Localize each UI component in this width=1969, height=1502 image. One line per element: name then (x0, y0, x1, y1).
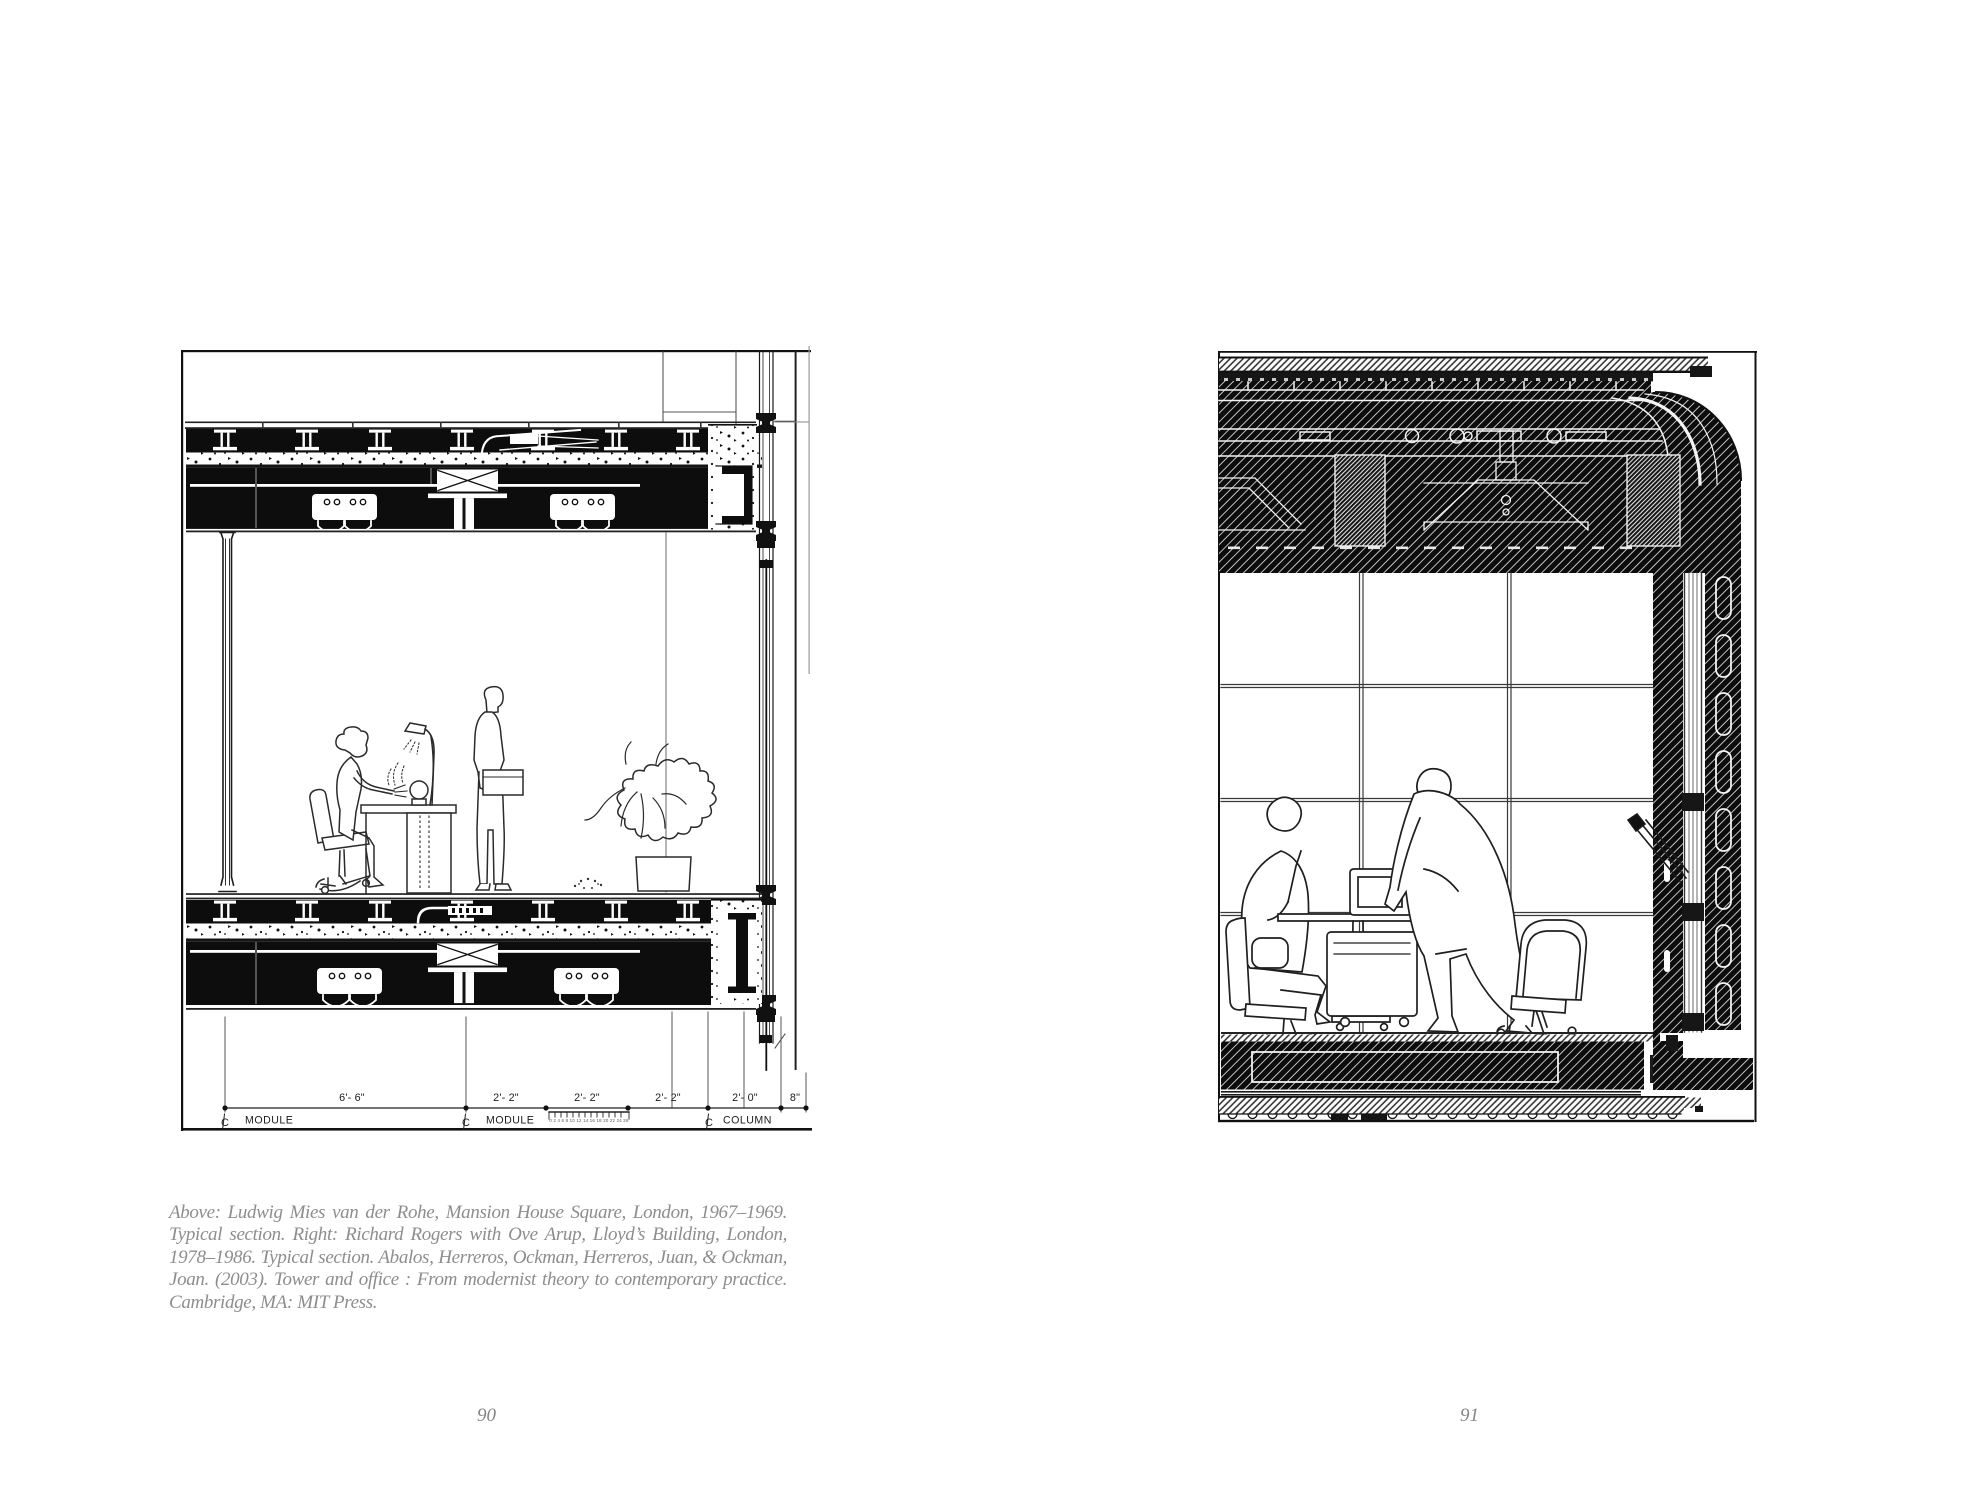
svg-text:2'- 2": 2'- 2" (493, 1092, 519, 1104)
svg-text:C: C (221, 1117, 229, 1129)
svg-text:2'- 2": 2'- 2" (655, 1092, 681, 1104)
svg-text:MODULE: MODULE (245, 1115, 293, 1127)
svg-text:C: C (705, 1117, 713, 1129)
svg-text:6'- 6": 6'- 6" (339, 1092, 365, 1104)
svg-text:8": 8" (790, 1092, 800, 1104)
svg-text:0 2 4 6 8 10 12 14 16 18 20 22: 0 2 4 6 8 10 12 14 16 18 20 22 24 26 (549, 1118, 629, 1123)
svg-text:C: C (462, 1117, 470, 1129)
svg-text:2'- 2": 2'- 2" (574, 1092, 600, 1104)
svg-text:MODULE: MODULE (486, 1115, 534, 1127)
svg-text:COLUMN: COLUMN (723, 1115, 772, 1127)
svg-text:2'- 0": 2'- 0" (732, 1092, 758, 1104)
